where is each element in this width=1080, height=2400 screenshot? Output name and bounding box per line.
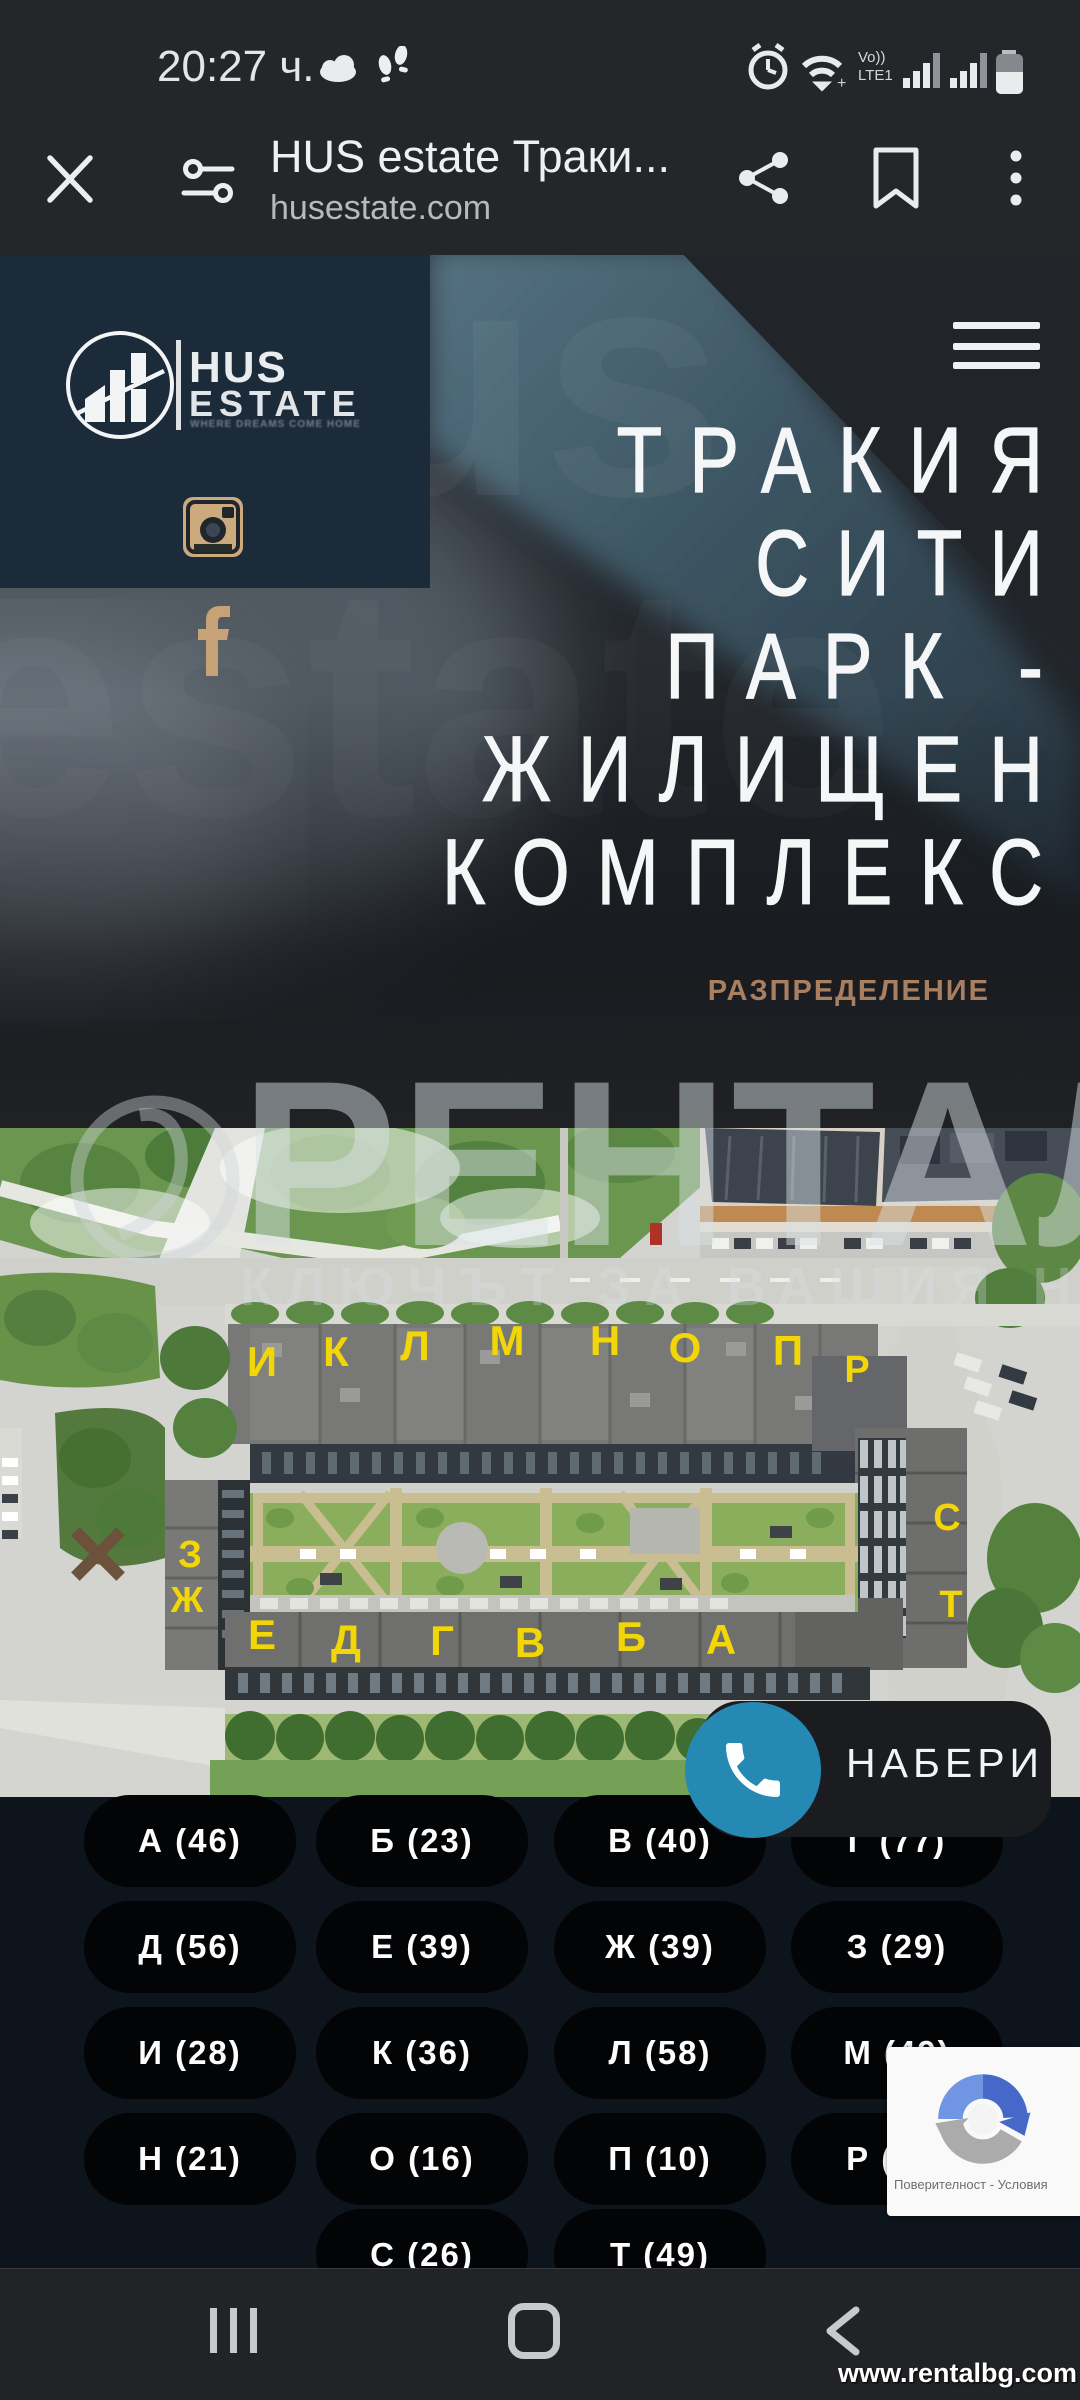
svg-text:Е: Е bbox=[248, 1611, 276, 1658]
svg-text:О: О bbox=[669, 1324, 702, 1371]
svg-text:Г: Г bbox=[430, 1617, 454, 1664]
svg-text:П: П bbox=[773, 1327, 803, 1374]
svg-text:Vo)): Vo)) bbox=[858, 49, 886, 66]
svg-text:В: В bbox=[515, 1619, 545, 1666]
svg-text:Ж: Ж bbox=[170, 1579, 204, 1620]
svg-text:Л: Л bbox=[400, 1322, 429, 1369]
svg-text:И: И bbox=[247, 1338, 277, 1385]
svg-text:С: С bbox=[933, 1497, 960, 1539]
svg-text:Н: Н bbox=[590, 1317, 620, 1364]
svg-text:К: К bbox=[323, 1328, 349, 1375]
svg-text:Т: Т bbox=[939, 1584, 962, 1626]
svg-text:Б: Б bbox=[616, 1613, 646, 1660]
svg-text:LTE1: LTE1 bbox=[858, 67, 893, 84]
svg-text:Р: Р bbox=[844, 1349, 869, 1391]
svg-text:А: А bbox=[706, 1616, 736, 1663]
svg-text:+: + bbox=[837, 75, 846, 92]
svg-text:Д: Д bbox=[331, 1616, 361, 1663]
svg-text:З: З bbox=[178, 1534, 202, 1576]
svg-text:М: М bbox=[490, 1317, 525, 1364]
